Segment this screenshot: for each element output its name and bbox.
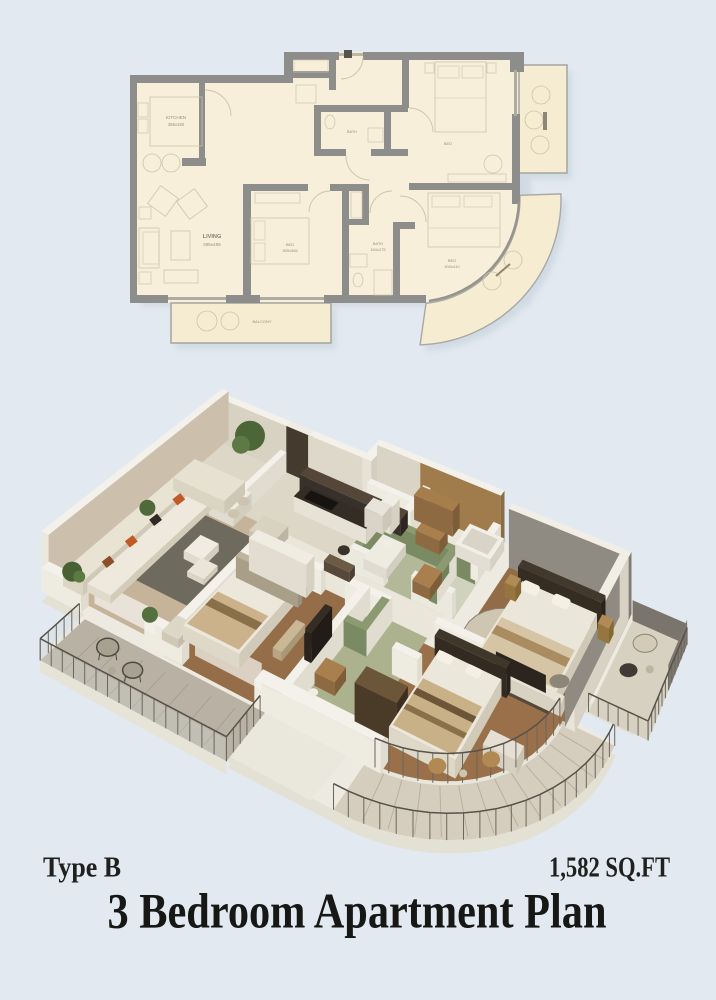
- svg-text:385x190: 385x190: [168, 122, 185, 127]
- svg-text:BATH: BATH: [373, 241, 383, 246]
- svg-text:395x495: 395x495: [203, 242, 221, 247]
- svg-text:LIVING: LIVING: [203, 234, 222, 240]
- svg-text:Type B: Type B: [43, 853, 121, 884]
- svg-text:BED: BED: [286, 242, 294, 247]
- svg-text:BATH: BATH: [347, 129, 357, 134]
- svg-text:164x275: 164x275: [370, 247, 386, 252]
- svg-text:1,582 SQ.FT: 1,582 SQ.FT: [549, 853, 670, 884]
- svg-text:BALCONY: BALCONY: [252, 319, 271, 324]
- svg-text:3 Bedroom Apartment Plan: 3 Bedroom Apartment Plan: [108, 883, 607, 939]
- svg-text:400x410: 400x410: [444, 264, 460, 269]
- svg-text:KITCHEN: KITCHEN: [166, 115, 186, 120]
- svg-text:BED: BED: [448, 258, 456, 263]
- svg-text:355x365: 355x365: [282, 248, 298, 253]
- svg-text:BED: BED: [444, 141, 452, 146]
